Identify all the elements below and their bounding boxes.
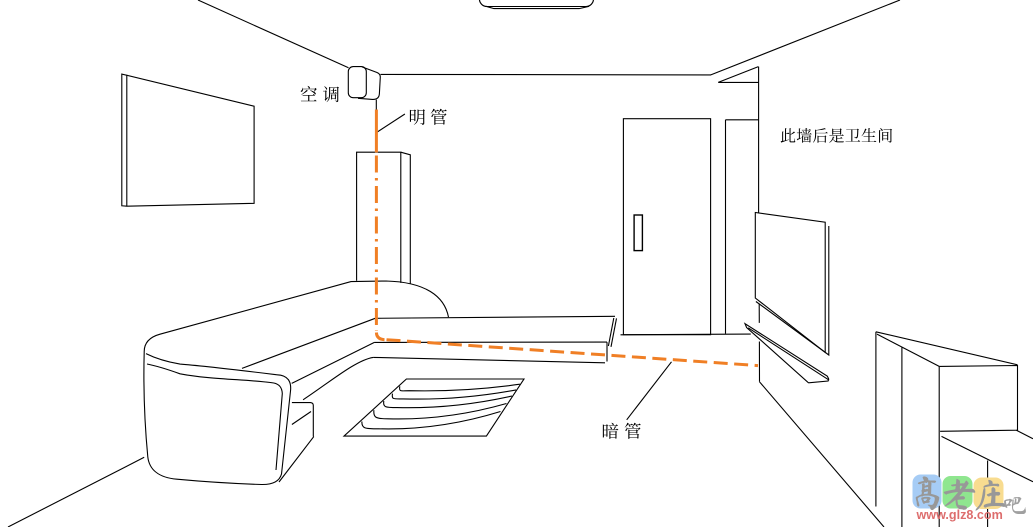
svg-text:www.glz8.com: www.glz8.com [916,508,1003,522]
